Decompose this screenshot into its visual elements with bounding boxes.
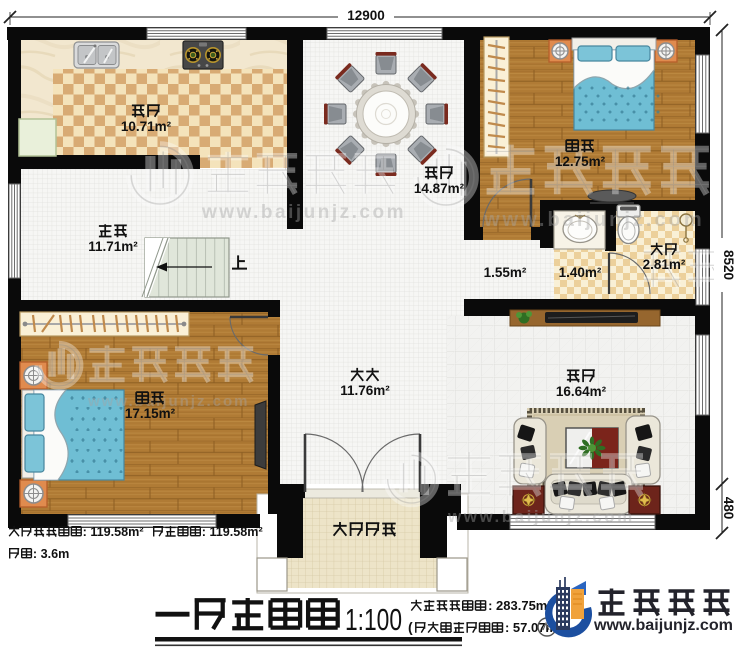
svg-text:1.55m²: 1.55m²	[484, 265, 527, 280]
svg-text:11.76m²: 11.76m²	[340, 383, 390, 398]
svg-text:2.81m²: 2.81m²	[643, 257, 686, 272]
svg-text:10.71m²: 10.71m²	[121, 119, 172, 134]
svg-text:www.baijunjz.com: www.baijunjz.com	[593, 617, 733, 634]
svg-text:: 119.58m²: : 119.58m²	[83, 525, 144, 539]
svg-text:www.baijunjz.com: www.baijunjz.com	[483, 209, 705, 231]
svg-text:: 283.75m²: : 283.75m²	[488, 598, 552, 613]
svg-text:: 119.58m²: : 119.58m²	[202, 525, 263, 539]
svg-text:8520: 8520	[721, 250, 736, 280]
svg-text:11.71m²: 11.71m²	[88, 239, 138, 254]
svg-text:480: 480	[721, 497, 736, 520]
svg-text:16.64m²: 16.64m²	[556, 384, 607, 399]
svg-text:14.87m²: 14.87m²	[414, 181, 465, 196]
svg-text:www.baijunjz.com: www.baijunjz.com	[201, 202, 406, 223]
svg-text:1:100: 1:100	[345, 602, 402, 637]
svg-text:www.baijunjz.com: www.baijunjz.com	[447, 507, 635, 526]
svg-text:12.75m²: 12.75m²	[555, 154, 606, 169]
svg-text:(: (	[408, 619, 413, 635]
svg-text:12900: 12900	[347, 8, 385, 23]
svg-text:: 3.6m: : 3.6m	[33, 547, 69, 561]
svg-text:1.40m²: 1.40m²	[559, 265, 602, 280]
svg-text:17.15m²: 17.15m²	[125, 406, 176, 421]
